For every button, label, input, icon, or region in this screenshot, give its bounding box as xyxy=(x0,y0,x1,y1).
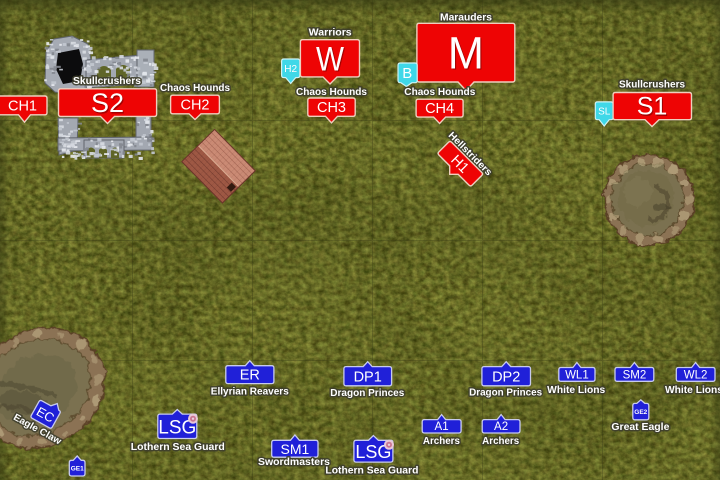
svg-text:A2: A2 xyxy=(494,421,508,433)
svg-text:Marauders: Marauders xyxy=(440,13,492,24)
svg-text:GE1: GE1 xyxy=(71,466,84,473)
svg-text:SL: SL xyxy=(598,106,611,117)
svg-text:H2: H2 xyxy=(284,64,297,75)
svg-text:Chaos Hounds: Chaos Hounds xyxy=(296,87,367,98)
svg-text:Lothern Sea Guard: Lothern Sea Guard xyxy=(131,442,225,453)
svg-text:Chaos Hounds: Chaos Hounds xyxy=(404,87,475,98)
svg-text:White Lions: White Lions xyxy=(665,385,720,396)
svg-text:Skullcrushers: Skullcrushers xyxy=(73,76,141,87)
svg-text:ER: ER xyxy=(240,368,260,384)
svg-text:CH4: CH4 xyxy=(425,101,454,117)
svg-text:CH1: CH1 xyxy=(8,98,37,114)
svg-text:Swordmasters: Swordmasters xyxy=(258,457,330,468)
svg-text:M: M xyxy=(448,28,484,79)
svg-text:S1: S1 xyxy=(637,93,668,121)
svg-text:SM2: SM2 xyxy=(623,370,647,382)
svg-text:WL1: WL1 xyxy=(565,370,589,382)
svg-text:GE2: GE2 xyxy=(634,409,647,416)
svg-text:Chaos Hounds: Chaos Hounds xyxy=(160,83,230,94)
svg-text:Lothern Sea Guard: Lothern Sea Guard xyxy=(325,465,418,476)
svg-text:A1: A1 xyxy=(435,421,449,433)
svg-text:Dragon Princes: Dragon Princes xyxy=(469,387,542,398)
svg-text:Ellyrian Reavers: Ellyrian Reavers xyxy=(211,386,289,397)
svg-text:White Lions: White Lions xyxy=(547,385,605,396)
svg-text:Archers: Archers xyxy=(423,436,460,447)
svg-text:CH3: CH3 xyxy=(317,100,346,116)
svg-text:S2: S2 xyxy=(91,88,124,118)
svg-text:Warriors: Warriors xyxy=(309,28,352,39)
svg-text:Archers: Archers xyxy=(482,436,519,447)
svg-text:B: B xyxy=(402,65,412,82)
svg-text:Dragon Princes: Dragon Princes xyxy=(330,388,404,399)
svg-text:DP1: DP1 xyxy=(354,369,382,385)
svg-text:Great Eagle: Great Eagle xyxy=(611,422,670,433)
svg-text:SM1: SM1 xyxy=(281,441,310,457)
svg-text:WL2: WL2 xyxy=(684,370,708,382)
svg-text:CH2: CH2 xyxy=(180,98,209,114)
svg-text:Skullcrushers: Skullcrushers xyxy=(619,80,685,91)
svg-text:DP2: DP2 xyxy=(492,369,520,385)
svg-text:W: W xyxy=(316,40,344,78)
